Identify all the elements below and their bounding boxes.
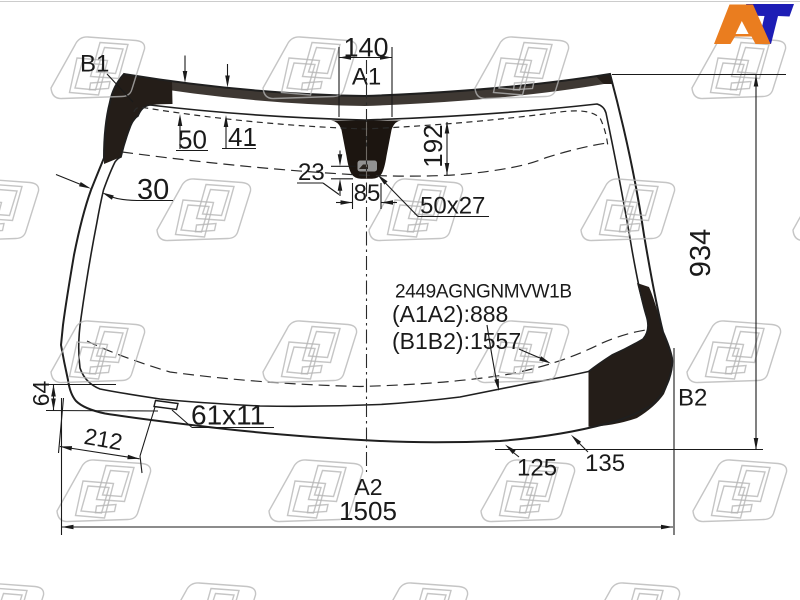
svg-text:50x27: 50x27	[420, 193, 485, 220]
svg-text:50: 50	[178, 125, 207, 155]
svg-text:2449AGNGNMVW1B: 2449AGNGNMVW1B	[395, 282, 572, 303]
svg-text:(A1A2):888: (A1A2):888	[392, 301, 508, 327]
svg-text:125: 125	[517, 455, 557, 482]
svg-text:135: 135	[585, 450, 625, 477]
svg-text:140: 140	[343, 33, 388, 63]
svg-text:(B1B2):1557: (B1B2):1557	[392, 328, 521, 354]
svg-text:1505: 1505	[339, 496, 397, 526]
svg-text:41: 41	[228, 122, 257, 152]
svg-text:23: 23	[298, 159, 325, 186]
svg-text:B2: B2	[678, 385, 707, 412]
svg-text:64: 64	[28, 381, 54, 407]
svg-text:934: 934	[685, 229, 717, 277]
svg-text:61x11: 61x11	[191, 400, 265, 431]
svg-text:A1: A1	[352, 64, 381, 91]
svg-text:85: 85	[354, 180, 381, 207]
svg-text:30: 30	[137, 174, 169, 206]
svg-text:192: 192	[418, 124, 448, 167]
svg-text:B1: B1	[80, 51, 109, 78]
